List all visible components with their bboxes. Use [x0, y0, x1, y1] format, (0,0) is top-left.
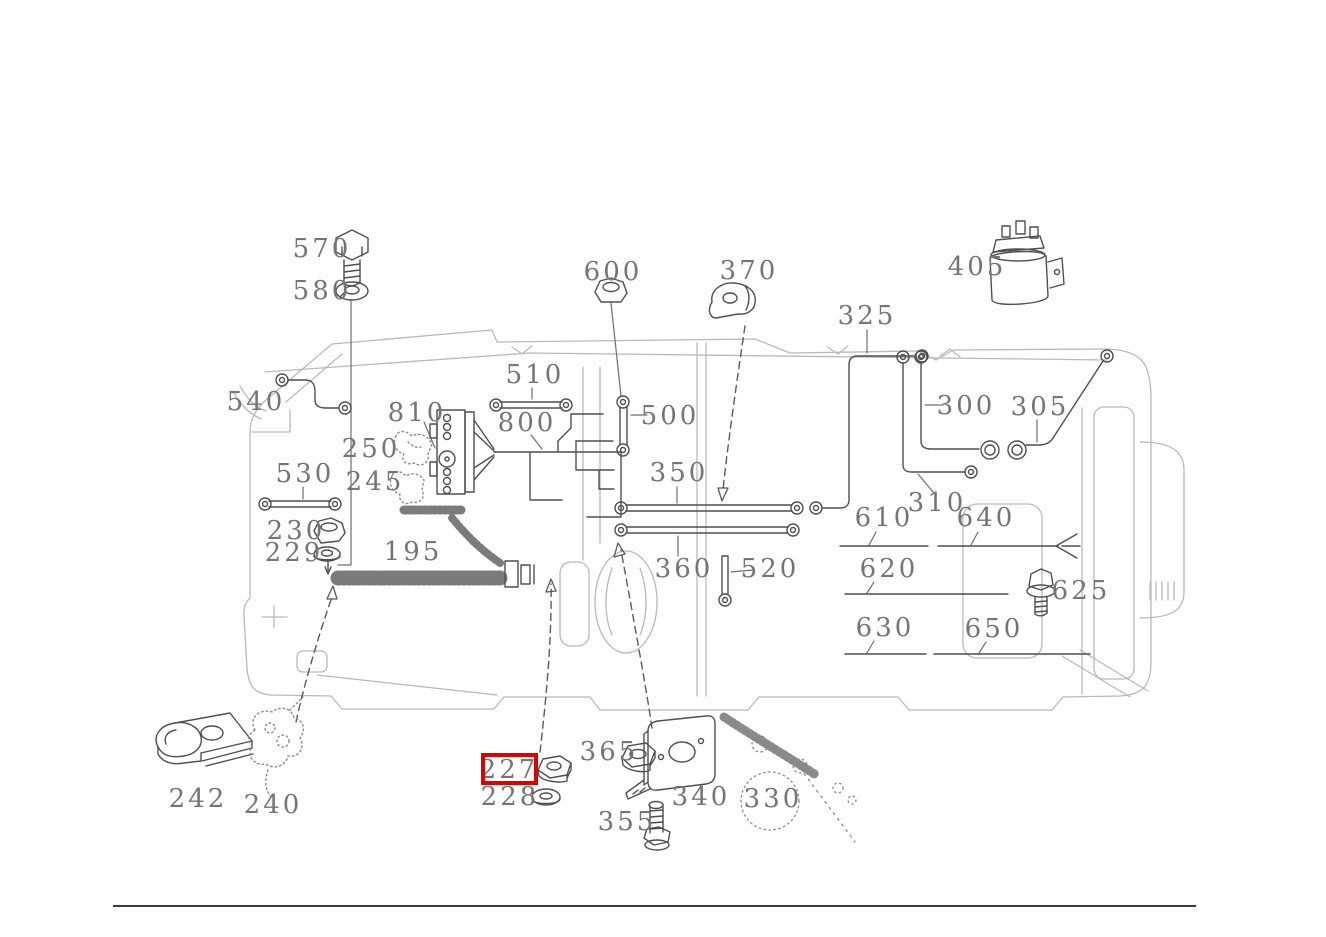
part-callout-240[interactable]: 240	[244, 792, 303, 818]
cable-350-icon	[615, 502, 803, 514]
parts-diagram-page: 5705806003704053255405108108005003003052…	[0, 0, 1326, 937]
footer-divider	[113, 905, 1196, 907]
part-callout-630[interactable]: 630	[856, 615, 915, 641]
cable-500-icon	[617, 396, 629, 456]
part-callout-305[interactable]: 305	[1011, 394, 1070, 420]
part-callout-650[interactable]: 650	[965, 616, 1024, 642]
part-callout-530[interactable]: 530	[276, 461, 335, 487]
part-callout-340[interactable]: 340	[672, 784, 731, 810]
part-callout-500[interactable]: 500	[641, 403, 700, 429]
part-callout-300[interactable]: 300	[937, 393, 996, 419]
harness-330-icon	[724, 717, 856, 842]
grommet-240-icon	[248, 697, 303, 796]
part-callout-245[interactable]: 245	[346, 469, 405, 495]
part-callout-242[interactable]: 242	[169, 786, 228, 812]
cable-line-640-icon	[938, 534, 1080, 558]
part-callout-330[interactable]: 330	[744, 786, 803, 812]
part-callout-600[interactable]: 600	[584, 259, 643, 285]
part-callout-570[interactable]: 570	[293, 236, 352, 262]
part-callout-370[interactable]: 370	[720, 258, 779, 284]
cable-520-icon	[719, 556, 731, 606]
part-callout-228[interactable]: 228	[481, 784, 540, 810]
part-callout-229[interactable]: 229	[265, 540, 324, 566]
part-callout-810[interactable]: 810	[388, 400, 447, 426]
cable-530-icon	[259, 498, 341, 510]
part-callout-520[interactable]: 520	[741, 556, 800, 582]
part-callout-360[interactable]: 360	[655, 556, 714, 582]
clamp-242-icon	[156, 713, 253, 766]
cable-540-icon	[276, 374, 351, 414]
part-callout-355[interactable]: 355	[598, 809, 657, 835]
part-callout-580[interactable]: 580	[293, 278, 352, 304]
part-callout-640[interactable]: 640	[957, 505, 1016, 531]
part-callout-800[interactable]: 800	[498, 410, 557, 436]
cable-360-icon	[615, 524, 799, 536]
part-callout-325[interactable]: 325	[838, 303, 897, 329]
part-callout-510[interactable]: 510	[506, 362, 565, 388]
part-callout-350[interactable]: 350	[650, 460, 709, 486]
clamp-370-icon	[709, 283, 755, 318]
highlight-box-227	[481, 753, 538, 785]
part-callout-620[interactable]: 620	[860, 556, 919, 582]
nut-227-icon	[538, 756, 571, 782]
chassis-outline	[233, 330, 1184, 710]
part-callout-625[interactable]: 625	[1052, 578, 1111, 604]
part-callout-365[interactable]: 365	[580, 739, 639, 765]
part-callout-250[interactable]: 250	[342, 436, 401, 462]
part-callout-610[interactable]: 610	[855, 505, 914, 531]
part-callout-405[interactable]: 405	[948, 254, 1007, 280]
part-callout-195[interactable]: 195	[384, 539, 443, 565]
part-callout-540[interactable]: 540	[227, 389, 286, 415]
